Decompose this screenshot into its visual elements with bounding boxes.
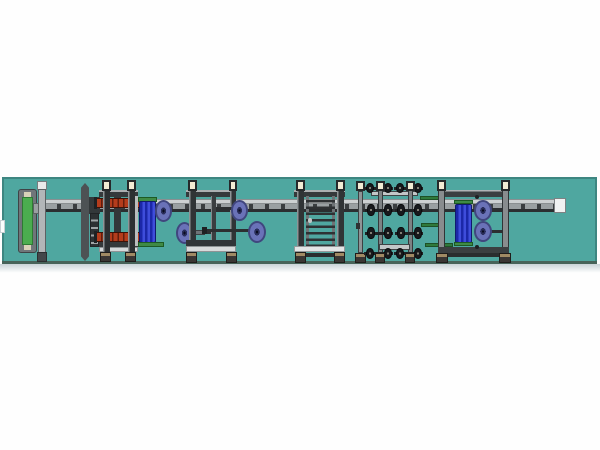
cad-canvas xyxy=(0,0,600,450)
festoon-wheel-midlow-1 xyxy=(367,227,375,240)
press-silver-strip xyxy=(135,196,138,246)
conveyor-rail-endcap xyxy=(554,198,566,213)
sheave-a-disc xyxy=(155,200,173,222)
festoon-wheel-bottom-4 xyxy=(414,248,423,259)
press-foot-left xyxy=(100,252,111,262)
sheave-d-rod-tip xyxy=(202,227,207,234)
bellows-2-cap-bottom xyxy=(454,242,474,246)
press-column-left xyxy=(103,190,110,252)
festoon-wheel-midup-1 xyxy=(367,204,375,217)
festoon-wheel-midlow-3 xyxy=(397,227,405,240)
guide-post-knob xyxy=(356,223,360,229)
press-cap-right-lamp xyxy=(129,182,134,189)
left-edge-notch xyxy=(0,220,5,233)
press-cap-left-lamp xyxy=(104,182,109,189)
festoon-crossbar-bottom xyxy=(379,244,410,250)
takeup-frame-column-left xyxy=(438,190,445,253)
sheave-e-disc xyxy=(474,200,493,222)
ladder-knob xyxy=(308,218,313,223)
bellows-2 xyxy=(455,204,473,243)
sheave-d-rod xyxy=(203,229,251,232)
festoon-wheel-midup-3 xyxy=(397,204,405,217)
unwind-panel-green-screen xyxy=(22,197,33,245)
ladder-frame-cap-left-lamp xyxy=(298,182,303,189)
festoon-wheel-midlow-2 xyxy=(384,227,392,240)
ladder-frame-foot-left xyxy=(295,252,306,263)
press-foot-right xyxy=(125,252,136,262)
frame2-cap-right-lamp xyxy=(231,182,236,189)
bellows-1 xyxy=(139,201,156,243)
festoon-wheel-bottom-3 xyxy=(396,248,405,259)
festoon-cap-right-lamp xyxy=(408,183,413,189)
ladder-frame-cap-right-lamp xyxy=(338,182,343,189)
frame2-cap-left-lamp xyxy=(190,182,195,189)
festoon-cap-left-lamp xyxy=(378,183,383,189)
unwind-panel-tab-top xyxy=(24,192,31,197)
frame2-foot-left xyxy=(186,252,197,263)
unwind-pillar xyxy=(38,189,46,253)
festoon-wheel-midlow-4 xyxy=(414,227,422,240)
bellows-1-cap-bottom xyxy=(138,242,164,247)
takeup-bolt-top xyxy=(475,195,480,200)
festoon-wheel-midup-4 xyxy=(414,204,422,217)
takeup-frame-runner xyxy=(444,253,504,257)
festoon-wheel-bottom-1 xyxy=(366,248,375,259)
festoon-wheel-top-3 xyxy=(396,183,405,194)
frame2-foot-right xyxy=(226,252,237,263)
turntable-disc-edge xyxy=(81,183,89,261)
takeup-bolt-bottom xyxy=(475,245,480,250)
ladder-frame-foot-right xyxy=(334,252,345,263)
unwind-pillar-foot xyxy=(37,252,47,262)
sheave-f-disc xyxy=(474,221,493,243)
sheave-d-disc xyxy=(248,221,266,243)
ladder-frame-column-right xyxy=(337,190,344,252)
festoon-foot-left xyxy=(375,253,385,263)
takeup-frame-foot-left xyxy=(436,253,448,263)
sheave-c-disc xyxy=(231,200,248,221)
press-roller-endplate-tl xyxy=(94,197,97,209)
ladder-frame-column-left xyxy=(297,190,304,252)
takeup-frame-cap-right-lamp xyxy=(503,182,508,189)
takeup-frame-column-right xyxy=(502,190,509,253)
festoon-wheel-top-4 xyxy=(414,183,423,194)
guide-post-cap-lamp xyxy=(358,183,363,189)
frame2-mid-bar xyxy=(211,196,216,246)
takeup-frame-foot-right xyxy=(499,253,511,263)
takeup-frame-cap-left-lamp xyxy=(439,182,444,189)
festoon-wheel-top-2 xyxy=(384,183,393,194)
backdrop-shadow xyxy=(0,264,600,273)
guide-post xyxy=(358,191,364,253)
festoon-wheel-bottom-2 xyxy=(384,248,393,259)
festoon-wheel-top-1 xyxy=(366,183,375,194)
festoon-wheel-midup-2 xyxy=(384,204,392,217)
festoon-foot-right xyxy=(405,253,415,263)
press-roller-endplate-bl xyxy=(94,231,97,243)
unwind-panel-tab-bottom xyxy=(24,245,31,250)
takeup-frame-beam-top xyxy=(438,190,509,197)
